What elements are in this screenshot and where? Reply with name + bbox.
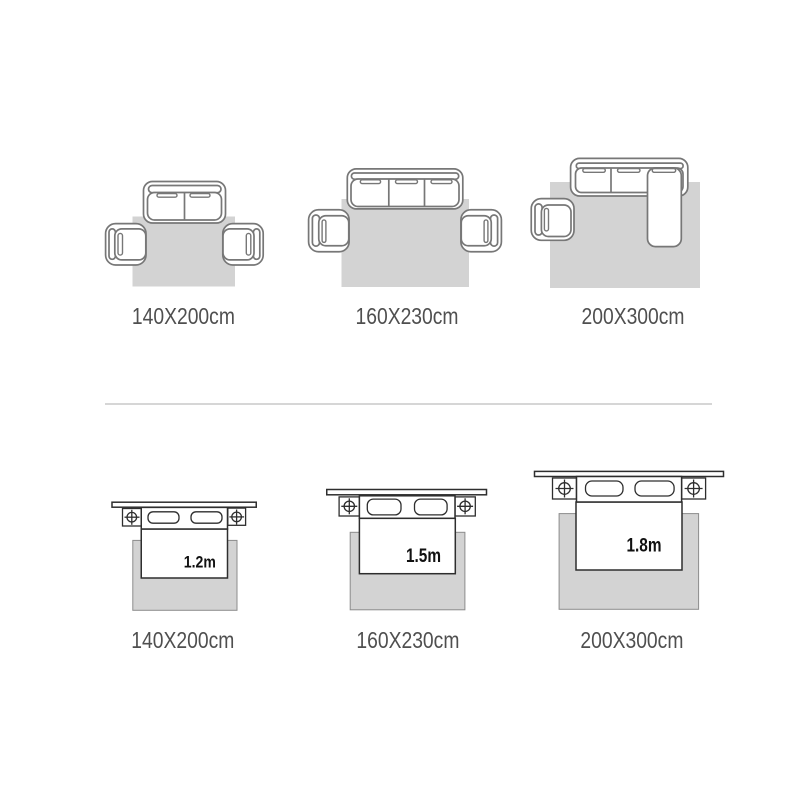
svg-text:200X300cm: 200X300cm [580, 627, 683, 653]
svg-text:1.8m: 1.8m [627, 536, 662, 557]
svg-text:1.5m: 1.5m [406, 546, 441, 567]
svg-text:140X200cm: 140X200cm [131, 627, 234, 653]
svg-text:160X230cm: 160X230cm [356, 303, 459, 329]
svg-text:200X300cm: 200X300cm [582, 303, 685, 329]
svg-text:1.2m: 1.2m [184, 554, 216, 572]
svg-text:140X200cm: 140X200cm [132, 303, 235, 329]
svg-text:160X230cm: 160X230cm [356, 627, 459, 653]
